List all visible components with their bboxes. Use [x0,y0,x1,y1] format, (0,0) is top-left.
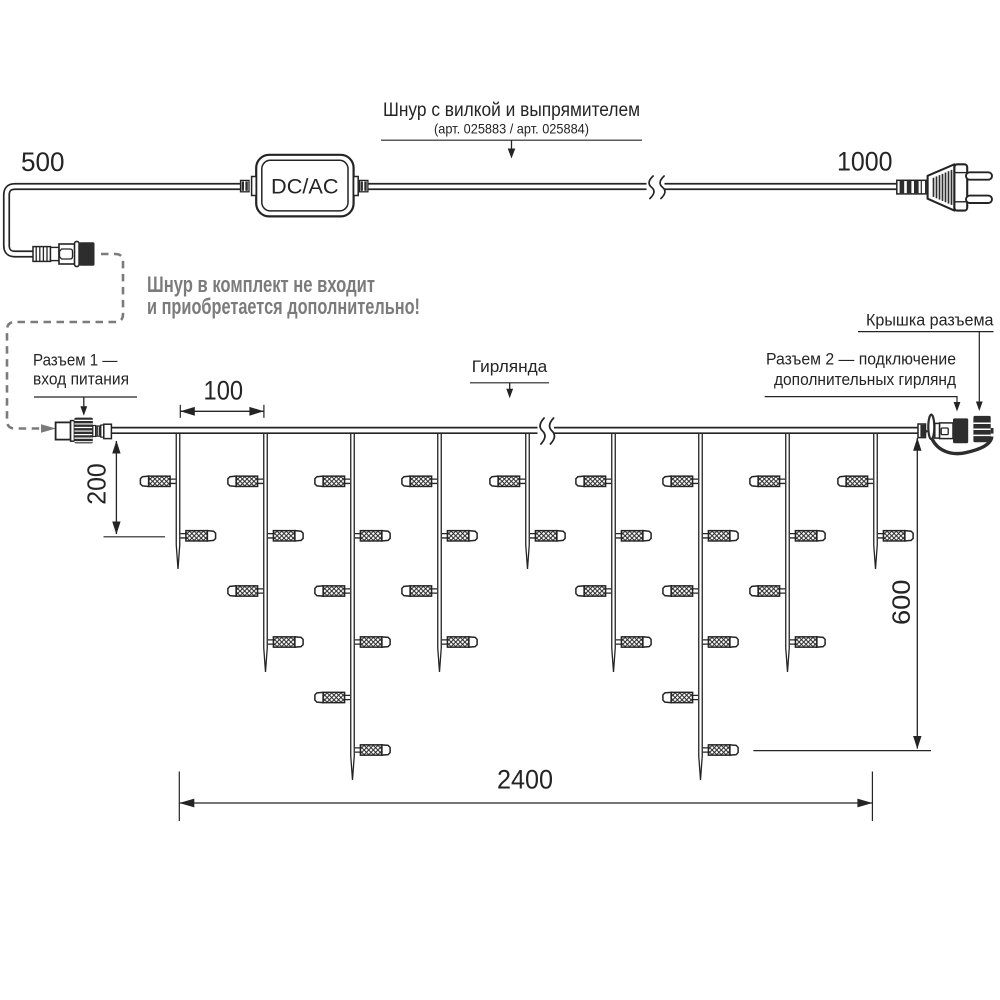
svg-text:100: 100 [204,376,244,406]
svg-text:Гирлянда: Гирлянда [472,358,548,376]
svg-text:1000: 1000 [837,147,893,177]
svg-text:200: 200 [81,463,111,505]
svg-text:вход питания: вход питания [33,371,129,389]
svg-text:500: 500 [21,147,65,177]
svg-text:Разъем 1 —: Разъем 1 — [33,352,118,370]
svg-text:Разъем 2 — подключение: Разъем 2 — подключение [766,351,956,369]
svg-text:600: 600 [888,580,916,626]
svg-text:Шнур с вилкой и выпрямителем: Шнур с вилкой и выпрямителем [383,99,640,121]
svg-text:дополнительных гирлянд: дополнительных гирлянд [774,371,956,389]
svg-text:Крышка разъема: Крышка разъема [866,312,994,330]
svg-text:DC/AC: DC/AC [271,175,339,199]
svg-text:2400: 2400 [497,765,553,795]
svg-text:(арт. 025883 / арт. 025884): (арт. 025883 / арт. 025884) [434,122,589,137]
svg-text:и приобретается дополнительно!: и приобретается дополнительно! [147,294,420,319]
